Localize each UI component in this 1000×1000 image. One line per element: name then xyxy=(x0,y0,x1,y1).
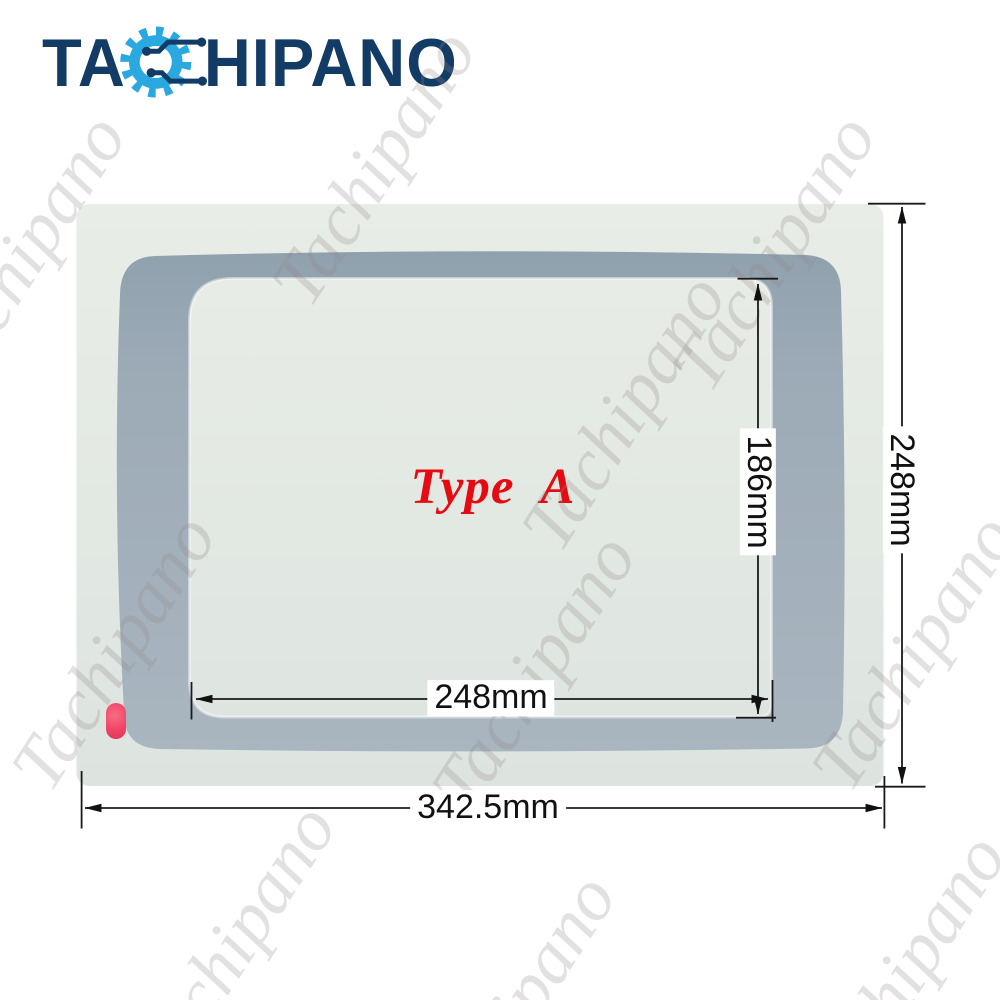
dim-inner-width-label: 248mm xyxy=(427,680,554,716)
dim-outer-width-label: 342.5mm xyxy=(410,790,566,826)
dimension-lines xyxy=(0,0,1000,1000)
product-image: TA HIPANO xyxy=(0,0,1000,1000)
dim-inner-height-label: 186mm xyxy=(740,428,776,555)
dim-outer-height-label: 248mm xyxy=(883,426,919,553)
